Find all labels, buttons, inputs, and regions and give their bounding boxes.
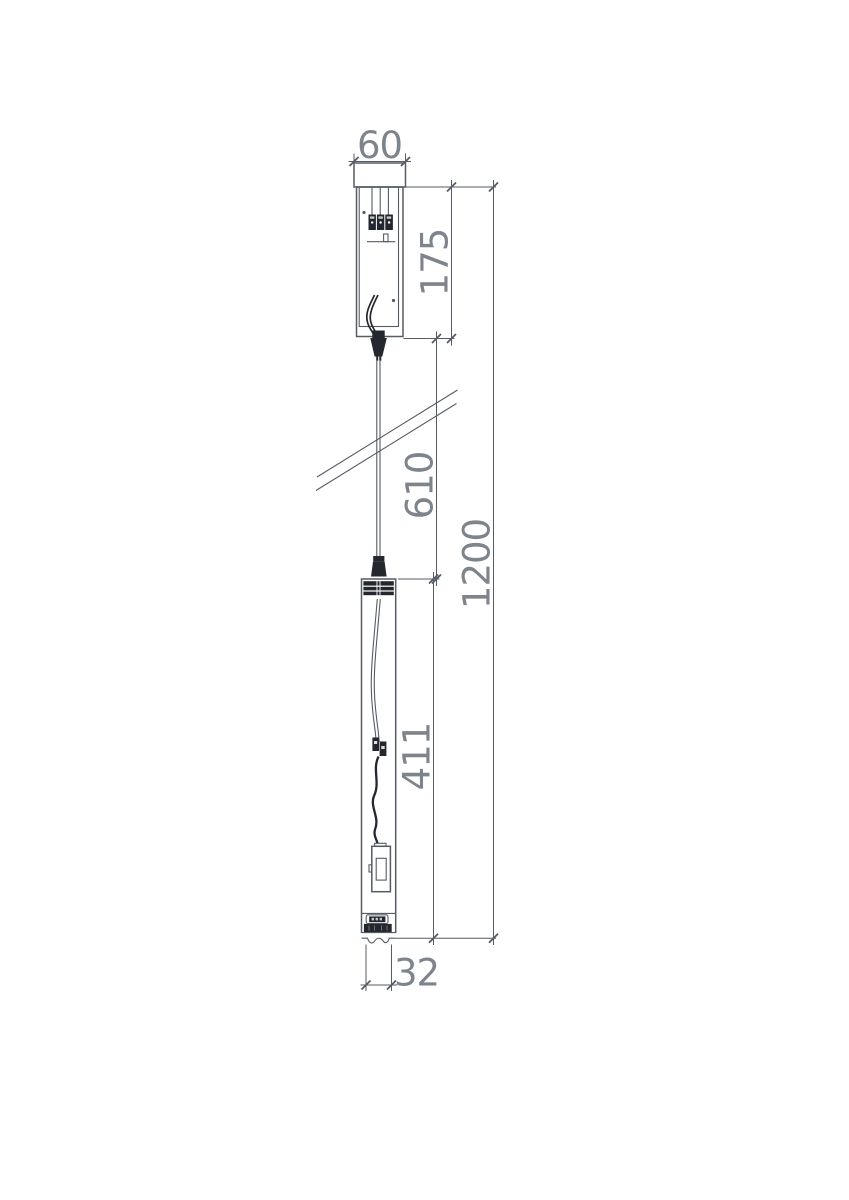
dim-label-canopy-width: 60 <box>357 124 402 167</box>
canopy-inner-wall <box>359 187 398 327</box>
lamp-tube <box>362 579 396 943</box>
dimensions: 60 175 610 1200 411 32 <box>349 124 499 995</box>
switch-button <box>376 858 386 880</box>
terminal-block <box>369 215 393 231</box>
cone-wire-stub <box>376 357 378 361</box>
tube-end-break-wave <box>362 938 396 943</box>
terminal-slot <box>370 216 374 218</box>
port-pin <box>372 918 374 921</box>
drawing-svg: 60 175 610 1200 411 32 <box>0 0 849 1200</box>
terminal-wires <box>372 187 388 215</box>
internal-power-wire <box>373 757 379 844</box>
dim-label-fixture-width: 32 <box>394 952 439 995</box>
port-pin <box>380 918 382 921</box>
bottom-port <box>366 915 388 924</box>
driver-switch <box>369 843 390 891</box>
dim-label-suspension-length: 610 <box>399 452 442 520</box>
connector-slit <box>381 746 384 749</box>
terminal-screw-dot <box>379 221 381 223</box>
connector-half <box>372 738 379 752</box>
tube-top-band <box>363 581 393 585</box>
terminal-slot <box>387 216 391 218</box>
tube-bottom-band <box>364 924 392 932</box>
dim-label-canopy-height: 175 <box>414 229 457 297</box>
tube-top-band <box>363 592 393 596</box>
tube-top-band <box>363 587 393 591</box>
port-pin <box>376 918 378 921</box>
canopy-screw <box>392 299 395 302</box>
dim-label-fixture-length: 411 <box>396 723 439 791</box>
dim-label-overall-height: 1200 <box>456 519 499 609</box>
switch-side-tab <box>369 865 372 872</box>
canopy <box>354 163 406 361</box>
cone-wire-stub <box>379 357 381 361</box>
strain-relief-cap-bottom <box>373 556 384 562</box>
connector-slit <box>374 741 377 744</box>
cable-clamp-tab <box>384 234 388 242</box>
suspension-cable <box>377 361 380 557</box>
terminal-slot <box>378 216 382 218</box>
lower-strain-relief <box>371 556 387 577</box>
technical-drawing-pendant-lamp: 60 175 610 1200 411 32 <box>0 0 849 1200</box>
strain-relief-cone-top <box>370 338 387 357</box>
terminal-screw-dot <box>388 221 390 223</box>
terminal-screw-dot <box>371 221 373 223</box>
canopy-screw <box>362 211 365 214</box>
switch-body <box>372 846 391 891</box>
strain-relief-cone-bottom <box>371 562 387 577</box>
strain-relief-cap-top <box>372 331 384 339</box>
